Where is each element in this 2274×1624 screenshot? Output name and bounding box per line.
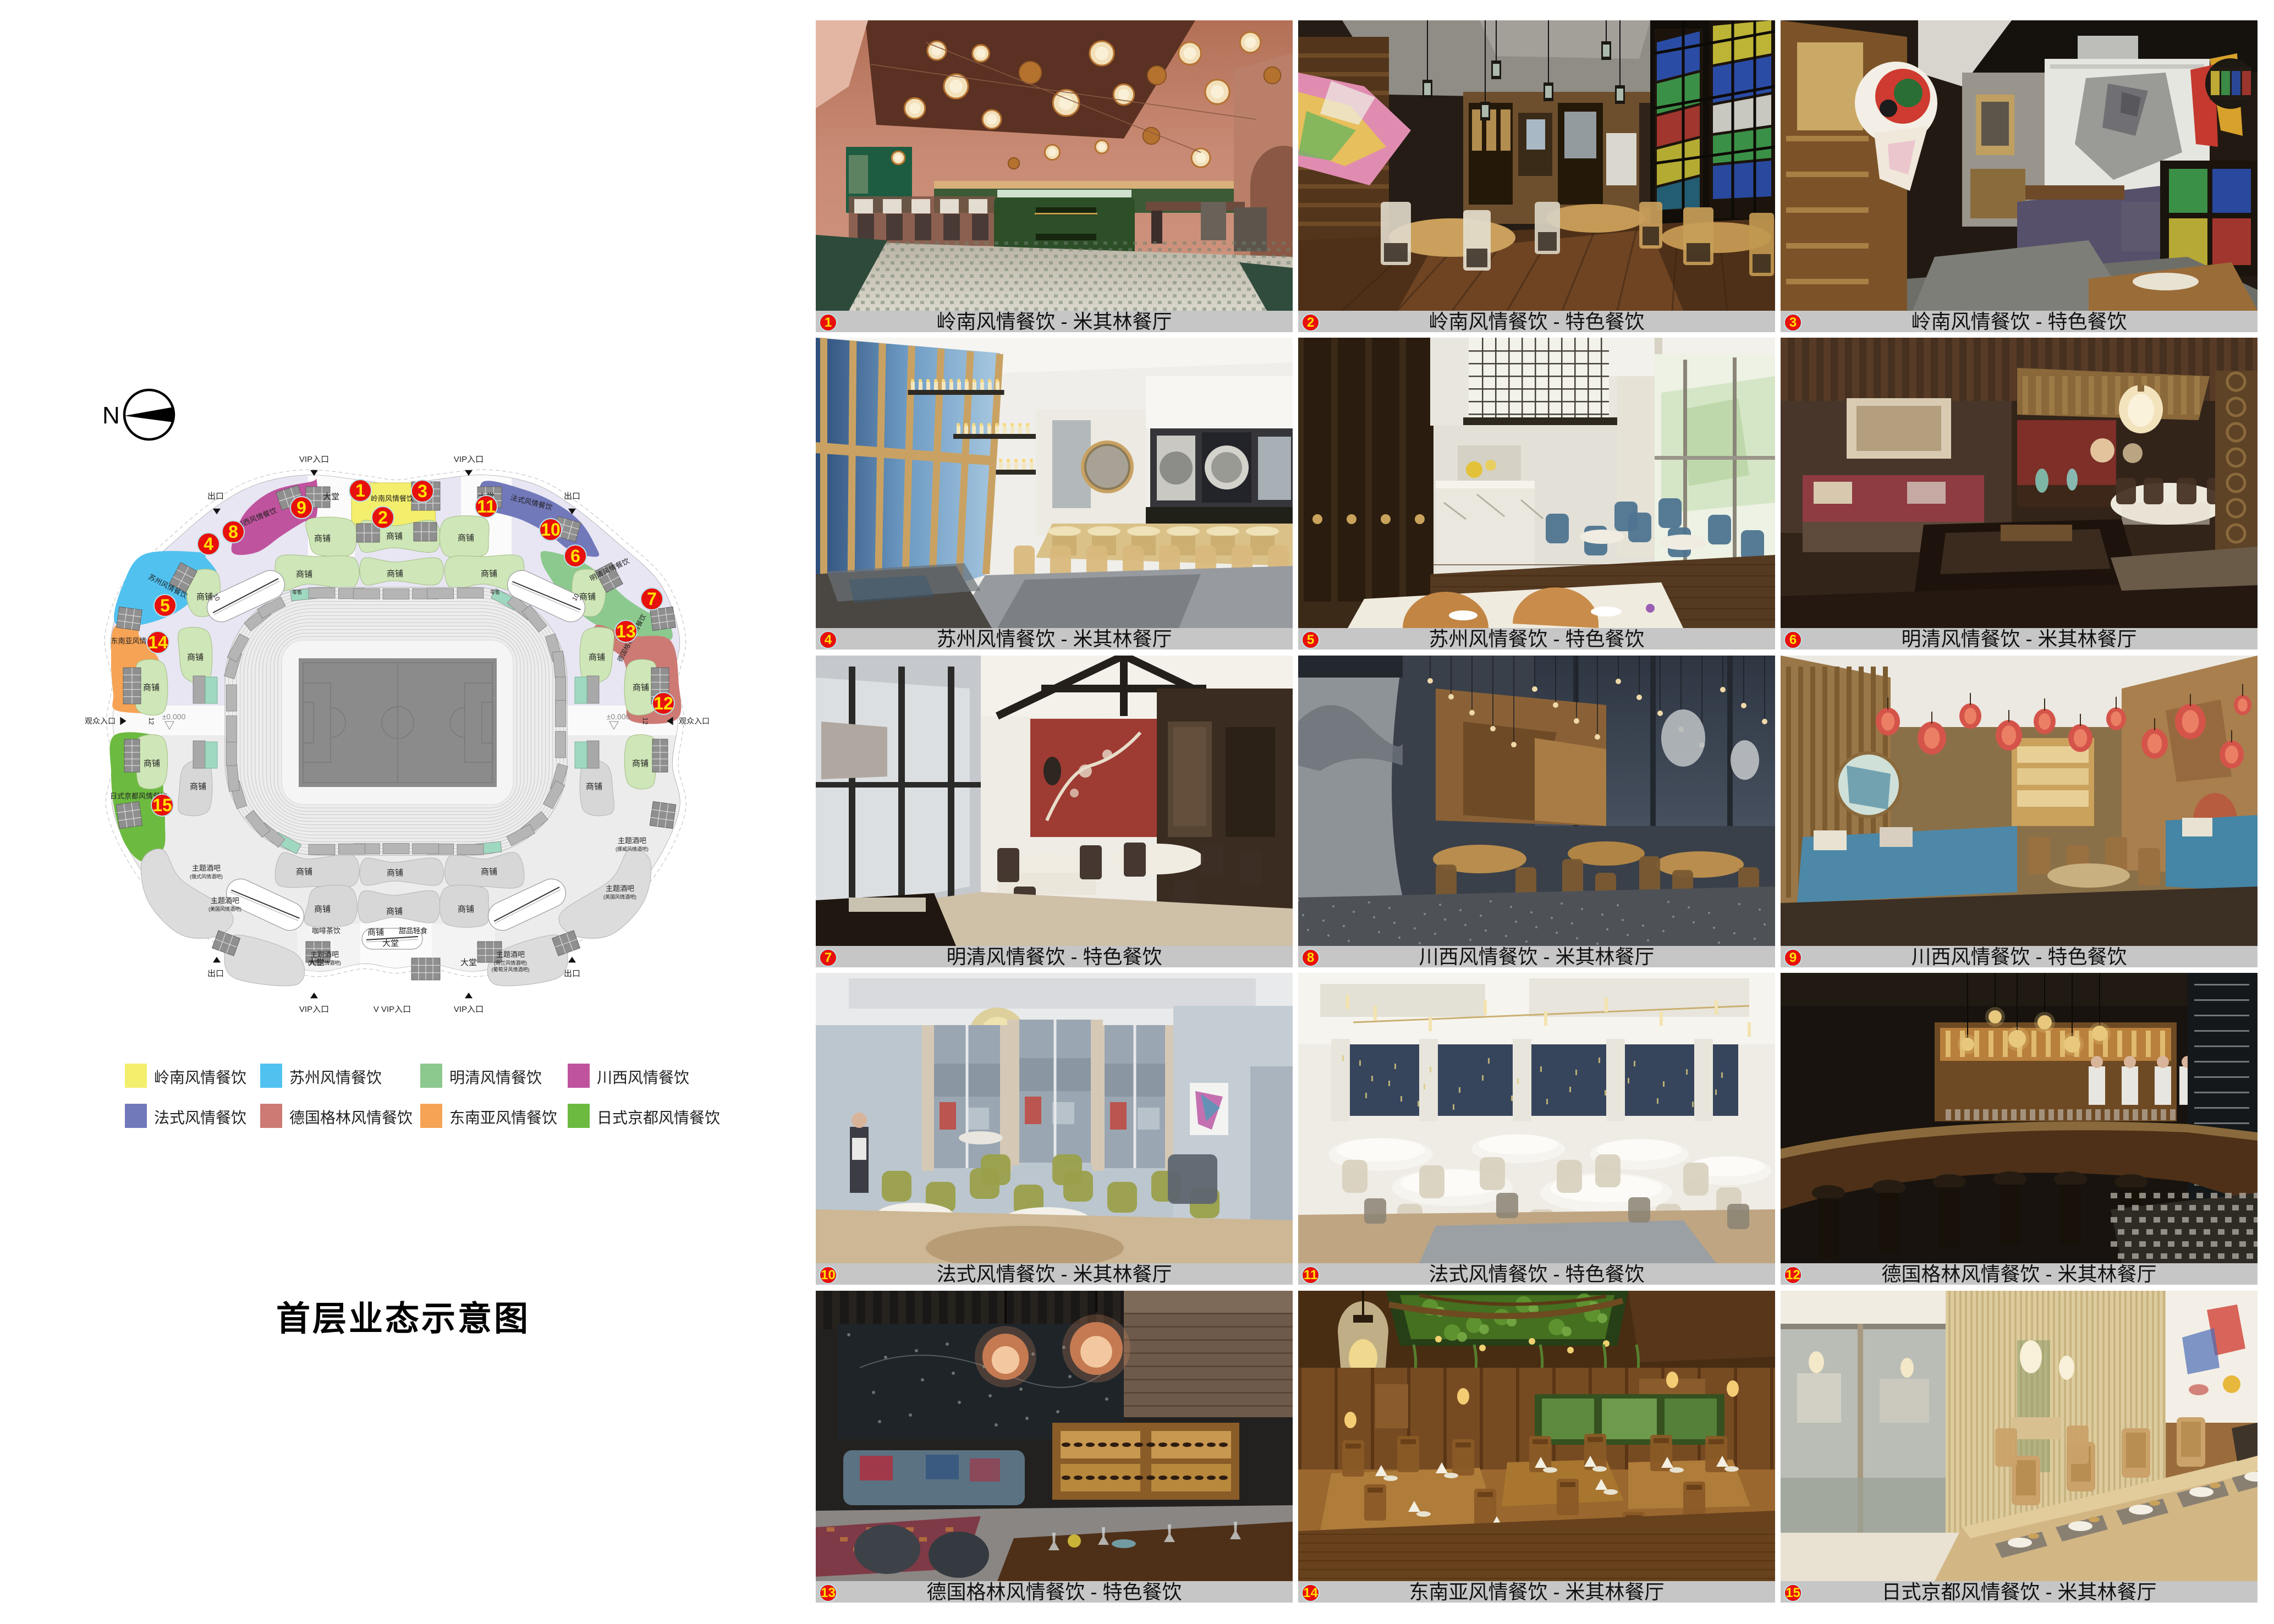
svg-text:商铺: 商铺 [196, 592, 213, 602]
svg-text:12: 12 [653, 693, 673, 713]
svg-text:3: 3 [418, 481, 427, 501]
svg-text:出口: 出口 [207, 492, 224, 501]
svg-text:主题酒吧: 主题酒吧 [496, 950, 525, 959]
svg-text:商铺: 商铺 [386, 907, 403, 916]
svg-text:商铺: 商铺 [314, 534, 331, 543]
svg-text:甜品轻食: 甜品轻食 [399, 927, 427, 935]
svg-text:12: 12 [641, 717, 649, 725]
svg-text:商铺: 商铺 [387, 569, 403, 579]
svg-text:1: 1 [355, 481, 365, 500]
svg-text:观众入口: 观众入口 [85, 717, 116, 725]
svg-text:观众入口: 观众入口 [679, 717, 710, 725]
svg-text:6: 6 [570, 546, 580, 566]
svg-text:商铺: 商铺 [187, 653, 204, 662]
svg-text:商铺: 商铺 [458, 905, 474, 914]
svg-text:商铺: 商铺 [458, 533, 474, 543]
svg-text:商铺: 商铺 [589, 653, 605, 662]
svg-text:商铺: 商铺 [144, 759, 160, 768]
svg-text:商铺: 商铺 [632, 759, 649, 768]
svg-text:(美国风情酒吧): (美国风情酒吧) [208, 906, 241, 912]
svg-text:大堂: 大堂 [382, 939, 399, 948]
svg-text:N: N [102, 402, 120, 429]
svg-text:商铺: 商铺 [586, 782, 602, 791]
svg-text:出口: 出口 [564, 492, 580, 501]
svg-text:12: 12 [147, 717, 155, 725]
svg-text:主题酒吧: 主题酒吧 [618, 836, 646, 845]
svg-text:±0.000: ±0.000 [162, 712, 186, 721]
svg-text:(挪威风情酒吧): (挪威风情酒吧) [616, 846, 649, 852]
svg-text:(荷兰风情酒吧): (荷兰风情酒吧) [494, 960, 527, 966]
svg-text:主题酒吧: 主题酒吧 [192, 864, 221, 872]
svg-text:14: 14 [148, 632, 168, 652]
svg-text:5: 5 [160, 596, 170, 615]
svg-text:(韩国风情酒吧): (韩国风情酒吧) [308, 960, 341, 966]
svg-text:±0.000: ±0.000 [607, 712, 630, 721]
svg-text:商铺: 商铺 [314, 905, 331, 914]
svg-text:9: 9 [296, 498, 306, 518]
svg-text:商铺: 商铺 [481, 867, 497, 877]
svg-text:商铺: 商铺 [367, 928, 384, 937]
svg-text:商铺: 商铺 [579, 592, 596, 602]
svg-text:VIP入口: VIP入口 [454, 1005, 484, 1014]
svg-text:13: 13 [616, 621, 636, 641]
svg-text:商铺: 商铺 [296, 867, 312, 877]
svg-text:(葡萄牙风情酒吧): (葡萄牙风情酒吧) [492, 966, 530, 972]
svg-text:商铺: 商铺 [190, 782, 206, 791]
svg-text:(俄式风情酒吧): (俄式风情酒吧) [190, 873, 223, 879]
svg-text:11: 11 [477, 497, 496, 516]
svg-text:(英国风情酒吧): (英国风情酒吧) [603, 894, 636, 900]
svg-text:15: 15 [152, 795, 172, 815]
svg-text:VIP入口: VIP入口 [454, 455, 484, 464]
svg-text:4: 4 [204, 534, 213, 554]
svg-text:10: 10 [541, 520, 561, 540]
svg-text:大堂: 大堂 [460, 958, 477, 967]
svg-text:8: 8 [228, 522, 238, 542]
svg-text:大堂: 大堂 [323, 492, 339, 502]
svg-text:主题酒吧: 主题酒吧 [606, 884, 634, 893]
svg-text:商铺: 商铺 [633, 683, 649, 692]
svg-text:商铺: 商铺 [386, 532, 403, 541]
svg-text:商铺: 商铺 [143, 683, 160, 692]
svg-text:商铺: 商铺 [481, 569, 497, 579]
svg-text:零售: 零售 [292, 589, 302, 595]
svg-text:岭南风情餐饮: 岭南风情餐饮 [371, 494, 414, 503]
svg-text:零售: 零售 [490, 589, 500, 595]
svg-text:商铺: 商铺 [387, 868, 403, 878]
svg-text:咖啡茶饮: 咖啡茶饮 [312, 927, 340, 935]
svg-text:2: 2 [378, 508, 388, 527]
svg-text:商铺: 商铺 [296, 570, 312, 579]
svg-text:出口: 出口 [564, 969, 580, 978]
svg-text:VIP入口: VIP入口 [299, 455, 329, 464]
svg-text:主题酒吧: 主题酒吧 [211, 896, 239, 905]
svg-text:7: 7 [647, 589, 657, 609]
svg-text:VIP入口: VIP入口 [299, 1005, 329, 1014]
svg-text:V VIP入口: V VIP入口 [373, 1005, 411, 1014]
svg-text:出口: 出口 [207, 969, 224, 978]
svg-text:主题酒吧: 主题酒吧 [310, 950, 339, 959]
